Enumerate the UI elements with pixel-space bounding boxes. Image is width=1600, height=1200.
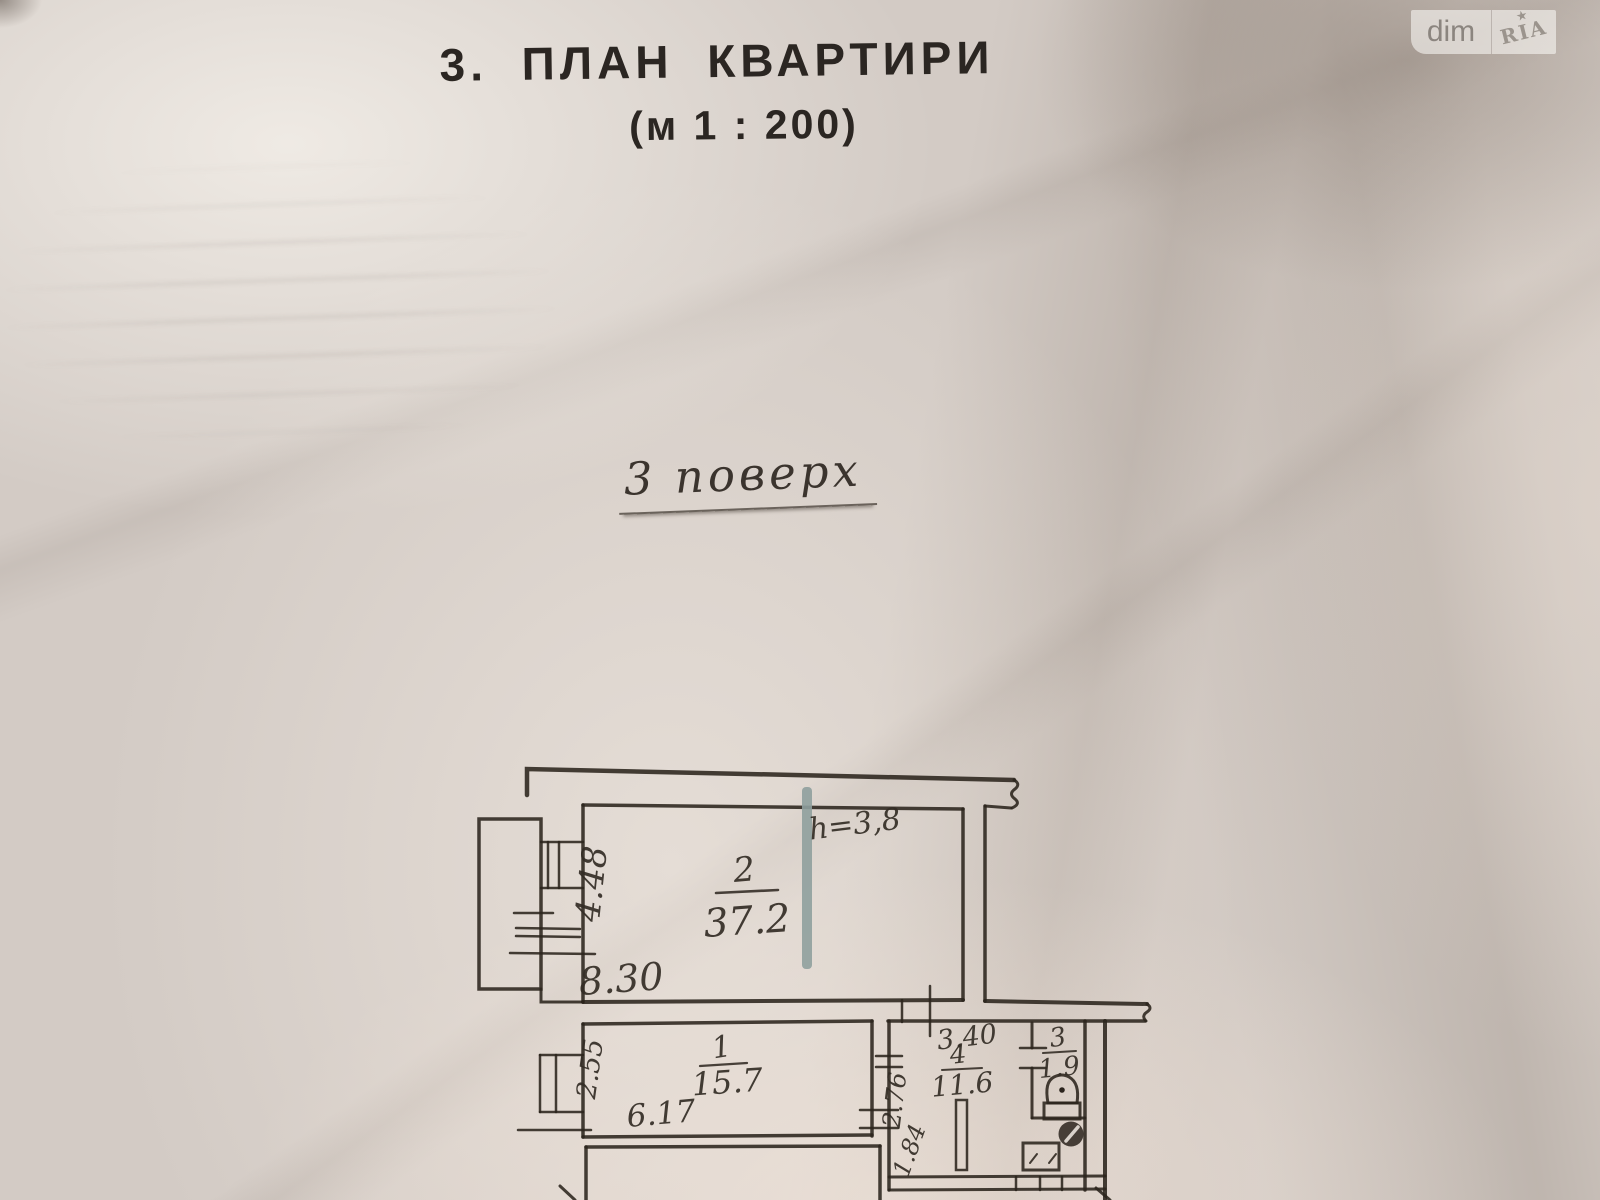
outer-wall-top-underside bbox=[985, 806, 1011, 808]
balcony-window-panes bbox=[548, 842, 559, 888]
room1-number-label: 1 bbox=[709, 1029, 733, 1067]
wall-break-squiggle-right bbox=[1144, 1004, 1150, 1021]
kitchen-top-dim: 3.40 bbox=[935, 1019, 998, 1057]
wc-number-label: 3 bbox=[1048, 1022, 1069, 1054]
room1-bottom-wall bbox=[583, 1135, 872, 1137]
kitchen-side-dim-lower: 1.84 bbox=[887, 1120, 932, 1180]
window-sill-line bbox=[510, 953, 595, 954]
watermark-dim-label: dim bbox=[1411, 10, 1492, 54]
room1-width-dim: 6.17 bbox=[625, 1093, 697, 1135]
lower-room-top-wall bbox=[586, 1146, 880, 1147]
kitchen-bottom-wall bbox=[889, 1176, 1105, 1190]
stove-marks bbox=[1030, 1154, 1056, 1163]
floor-note-text: 3 поверх bbox=[617, 443, 877, 515]
scale-note: (м 1 : 200) bbox=[0, 94, 1488, 157]
watermark: dim ★ RIA bbox=[1411, 10, 1556, 54]
room2-number-label: 2 bbox=[731, 849, 757, 891]
wc-area-label: 1.9 bbox=[1037, 1051, 1081, 1085]
wall-cut-tick bbox=[560, 1186, 575, 1200]
balcony-outline bbox=[479, 819, 541, 989]
room2-bottom-wall bbox=[583, 1000, 963, 1002]
photographed-floor-plan-page: { "watermark": { "dim": "dim", "ria": "R… bbox=[0, 0, 1600, 1200]
room2-depth-dim: 4.48 bbox=[568, 844, 616, 924]
kitchen-area-label: 11.6 bbox=[930, 1065, 995, 1103]
corridor-top-wall bbox=[985, 1001, 1147, 1004]
apartment-floor-plan-drawing: 2 37.2 8.30 4.48 h=3,8 1 15.7 6.17 2.55 … bbox=[410, 725, 1210, 1200]
vent-duct-stub bbox=[956, 1100, 967, 1170]
room2-area-label: 37.2 bbox=[702, 896, 792, 947]
page-title: 3. ПЛАН КВАРТИРИ bbox=[0, 24, 1434, 98]
toilet-drain-dot bbox=[1059, 1087, 1065, 1093]
handwritten-floor-note: 3 поверх bbox=[617, 443, 877, 515]
balcony-connector-wall bbox=[541, 989, 583, 1002]
paper-crease-texture bbox=[0, 140, 560, 470]
window-double-line bbox=[516, 928, 580, 937]
outer-wall-top bbox=[527, 769, 1014, 795]
room2-width-dim: 8.30 bbox=[577, 954, 664, 1004]
watermark-ria-cell: ★ RIA bbox=[1492, 10, 1556, 54]
room1-top-wall bbox=[583, 1021, 872, 1024]
room1-depth-dim: 2.55 bbox=[571, 1037, 610, 1102]
room1-area-label: 15.7 bbox=[690, 1061, 764, 1104]
wall-break-squiggle-top bbox=[1012, 780, 1018, 808]
room1-window-panes bbox=[540, 1055, 556, 1112]
watermark-ria-label: RIA bbox=[1498, 15, 1550, 50]
room2-top-wall bbox=[583, 805, 963, 809]
kitchen-number-label: 4 bbox=[947, 1039, 968, 1071]
